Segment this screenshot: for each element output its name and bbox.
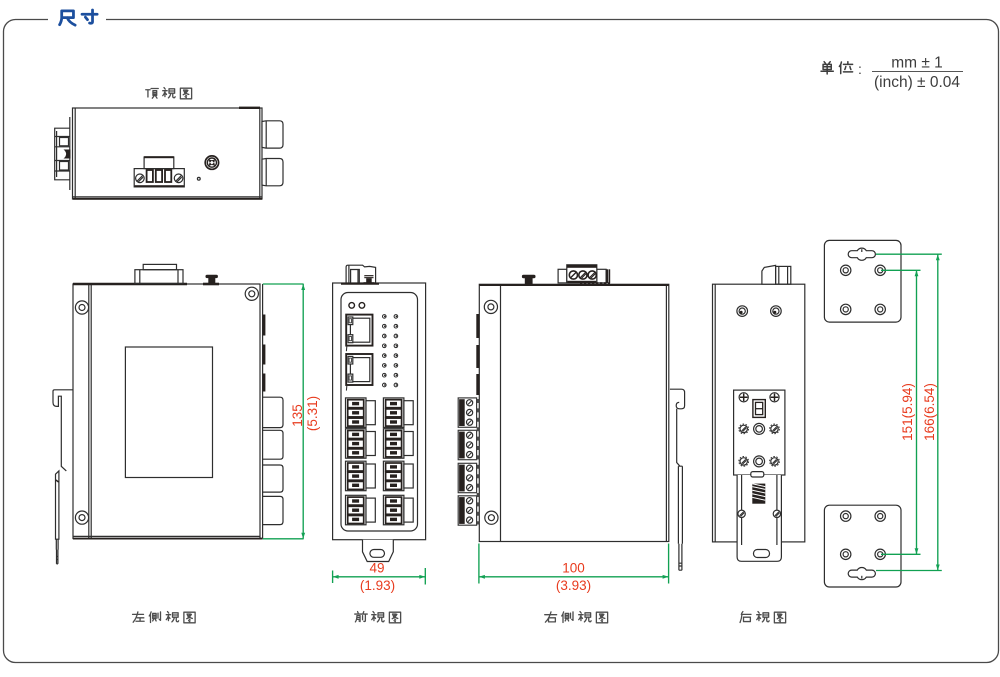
svg-text:166(6.54): 166(6.54) (922, 383, 937, 441)
svg-text:100: 100 (562, 561, 585, 576)
svg-text:(3.93): (3.93) (556, 578, 591, 593)
svg-text:(5.31): (5.31) (305, 396, 320, 431)
svg-text:(inch) ± 0.04: (inch) ± 0.04 (874, 74, 960, 91)
svg-text::: : (858, 61, 862, 77)
svg-text:135: 135 (290, 404, 305, 427)
svg-text:151(5.94): 151(5.94) (900, 383, 915, 441)
svg-text:(1.93): (1.93) (360, 578, 395, 593)
svg-text:mm ± 1: mm ± 1 (891, 55, 943, 72)
svg-text:49: 49 (369, 561, 384, 576)
